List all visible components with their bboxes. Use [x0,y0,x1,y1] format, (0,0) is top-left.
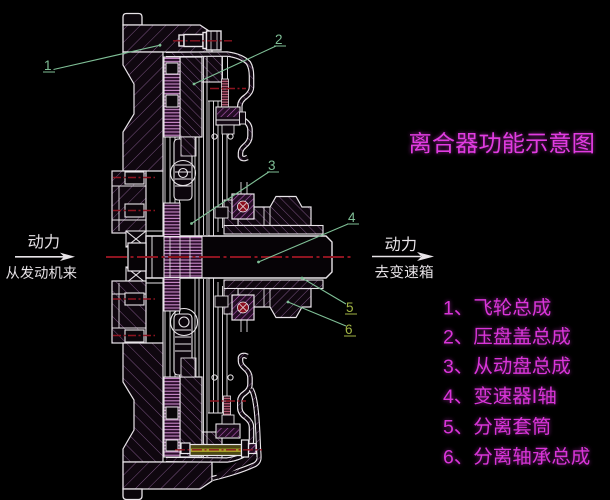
svg-text:1: 1 [443,297,454,319]
svg-text:4: 4 [443,386,454,408]
svg-text:3: 3 [443,356,454,378]
svg-text:3: 3 [268,158,276,173]
svg-text:1: 1 [44,58,52,73]
svg-text:5: 5 [346,300,354,315]
svg-text:5: 5 [443,416,454,438]
svg-text:6: 6 [443,446,454,468]
svg-text:2: 2 [443,326,454,348]
svg-text:I: I [532,386,537,408]
svg-text:6: 6 [345,322,353,337]
svg-text:2: 2 [275,32,283,47]
svg-text:4: 4 [348,210,356,225]
